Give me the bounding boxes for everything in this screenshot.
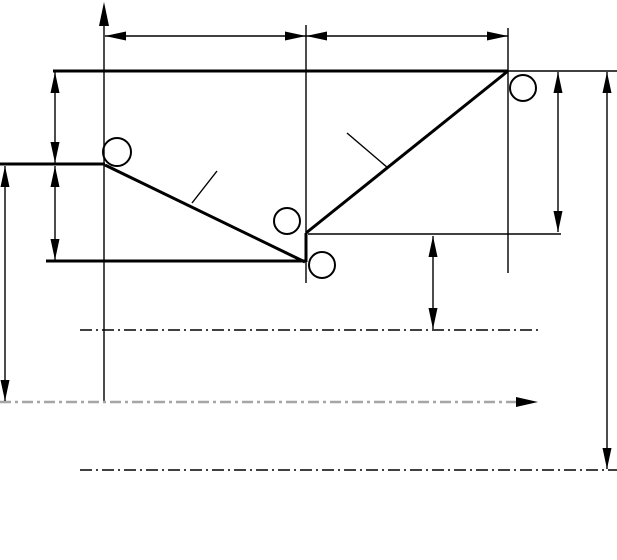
marker-circle-center-lower xyxy=(309,252,335,278)
marker-circle-right xyxy=(510,75,536,101)
dim-left-upper-height-arrowhead-end xyxy=(51,142,60,163)
dim-right-inner-height-arrowhead-end xyxy=(554,211,563,232)
dim-top-right-width-arrowhead-end xyxy=(487,32,508,41)
dim-top-left-width-arrowhead-start xyxy=(105,32,126,41)
marker-circle-left xyxy=(103,138,131,166)
technical-drawing-page xyxy=(0,0,617,560)
left-slope-leader-line xyxy=(192,171,217,203)
dim-left-upper-height-arrowhead-start xyxy=(51,72,60,93)
dim-center-drop-arrowhead-end xyxy=(429,308,438,329)
dim-right-inner-height-arrowhead-start xyxy=(554,72,563,93)
centerline-arrowhead xyxy=(516,397,538,407)
dim-top-right-width-arrowhead-start xyxy=(306,32,327,41)
left-slope-line xyxy=(105,165,305,262)
axis-arrowhead xyxy=(99,2,109,26)
dim-center-drop-arrowhead-start xyxy=(429,236,438,257)
technical-drawing-canvas xyxy=(0,0,617,560)
dim-far-left-height-arrowhead-end xyxy=(1,380,10,401)
dim-far-left-height-arrowhead-start xyxy=(1,166,10,187)
right-slope-line xyxy=(306,71,508,233)
dim-top-left-width-arrowhead-end xyxy=(285,32,306,41)
dim-far-right-height-arrowhead-end xyxy=(603,448,612,469)
marker-circle-center-upper xyxy=(274,208,300,234)
dim-left-lower-height-arrowhead-end xyxy=(51,239,60,260)
dim-left-lower-height-arrowhead-start xyxy=(51,166,60,187)
right-slope-leader-line xyxy=(347,133,388,168)
dim-far-right-height-arrowhead-start xyxy=(603,72,612,93)
